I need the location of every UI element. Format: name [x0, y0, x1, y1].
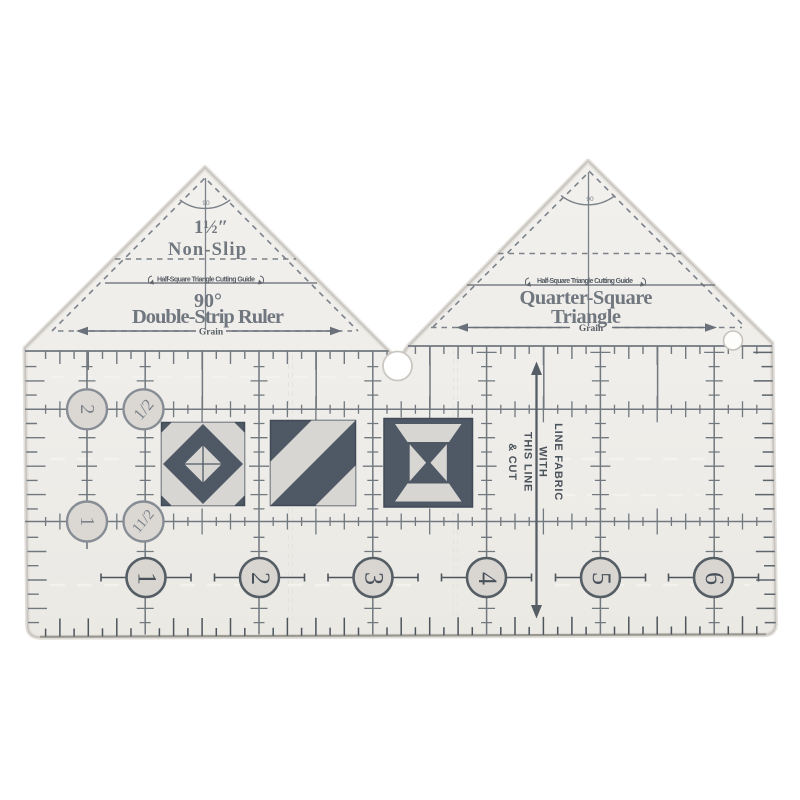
svg-text:1½″: 1½″ — [194, 217, 228, 238]
svg-text:3: 3 — [360, 572, 389, 585]
svg-text:Double-Strip Ruler: Double-Strip Ruler — [132, 306, 284, 328]
svg-text:LINE FABRIC: LINE FABRIC — [552, 423, 564, 501]
svg-text:90: 90 — [202, 200, 210, 207]
svg-text:WITH: WITH — [537, 446, 549, 477]
svg-text:Grain: Grain — [199, 328, 224, 338]
svg-text:THIS LINE: THIS LINE — [521, 432, 533, 492]
svg-text:2: 2 — [246, 572, 275, 585]
svg-text:5: 5 — [587, 572, 616, 585]
svg-text:4: 4 — [473, 572, 502, 585]
svg-text:90: 90 — [586, 196, 594, 203]
svg-text:Grain: Grain — [579, 324, 604, 334]
svg-text:Half-Square Triangle Cutting G: Half-Square Triangle Cutting Guide — [157, 277, 255, 284]
svg-text:6: 6 — [700, 572, 729, 585]
svg-text:1: 1 — [76, 517, 98, 527]
svg-text:Half-Square Triangle Cutting G: Half-Square Triangle Cutting Guide — [537, 278, 633, 285]
svg-text:& CUT: & CUT — [506, 443, 518, 481]
svg-text:1: 1 — [133, 572, 162, 585]
svg-text:2: 2 — [76, 404, 98, 414]
svg-text:Non-Slip: Non-Slip — [168, 240, 246, 260]
